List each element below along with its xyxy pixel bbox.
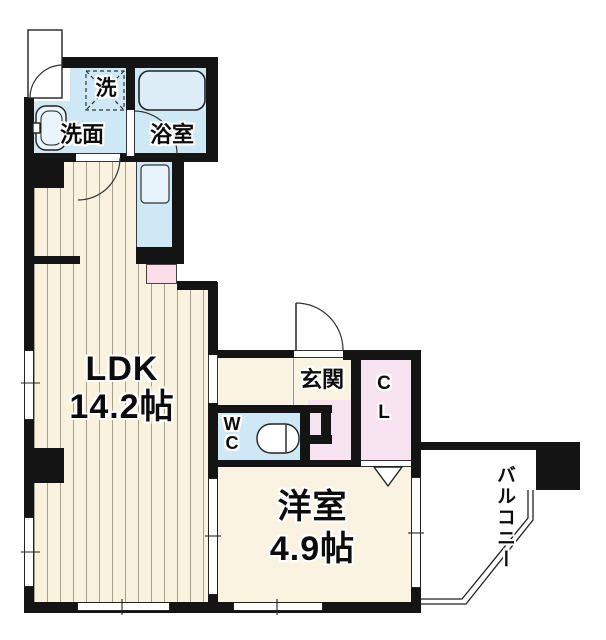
entrance-label: 玄関: [282, 368, 362, 391]
western-room-size-label: 4.9帖: [240, 532, 385, 568]
balcony-railing: [421, 490, 533, 604]
ldk-label: LDK: [60, 352, 184, 388]
bathroom-label: 浴室: [132, 123, 212, 146]
washroom-label: 洗面: [42, 123, 122, 146]
closet-label: CL: [375, 370, 393, 427]
ldk-size-label: 14.2帖: [46, 390, 198, 426]
western-room-label: 洋室: [240, 490, 385, 526]
service-door-leaf: [28, 30, 62, 98]
balcony-label: バルコニー: [494, 452, 514, 582]
entrance-door-swing-arc: [296, 303, 343, 350]
closet-door-marker: [374, 467, 402, 486]
laundry-label: 洗: [86, 78, 126, 100]
wc-label: WC: [222, 415, 242, 453]
floorplan-canvas: LDK 14.2帖 洋室 4.9帖 玄関 浴室 洗面 洗 WC CL バルコニー: [0, 0, 606, 640]
washroom-door-swing-arc: [78, 158, 120, 200]
toilet-icon: [257, 424, 299, 453]
bathtub-icon: [139, 71, 205, 110]
kitchen-sink-icon: [141, 165, 169, 203]
